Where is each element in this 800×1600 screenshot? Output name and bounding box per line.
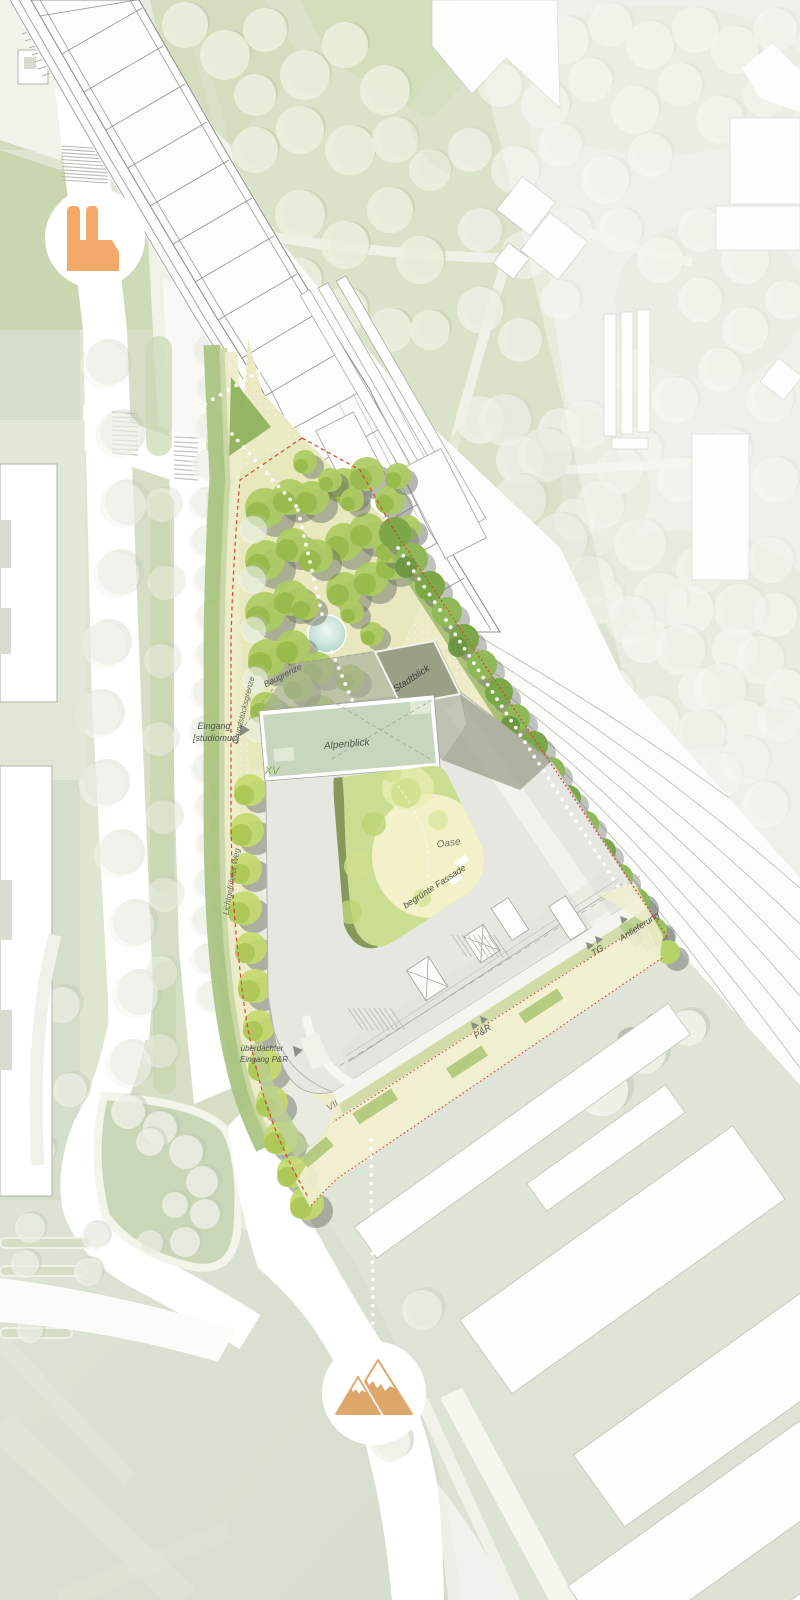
svg-text:Eingang: Eingang: [197, 721, 230, 731]
svg-text:Eingang P&R: Eingang P&R: [240, 1055, 288, 1064]
svg-text:überdachter: überdachter: [241, 1044, 284, 1053]
svg-text:XV: XV: [264, 765, 281, 777]
